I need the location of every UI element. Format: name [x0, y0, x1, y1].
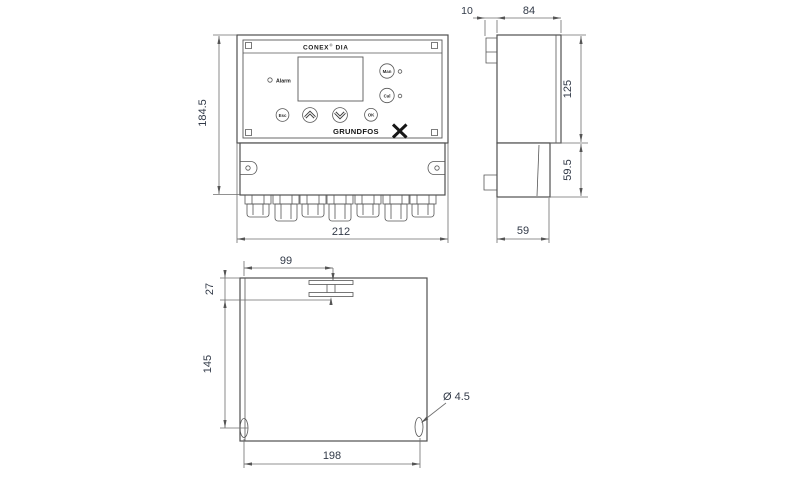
dim-depth-label: 84 — [523, 5, 535, 17]
dim-height-label: 184.5 — [197, 99, 209, 127]
dim-upper-height-label: 125 — [562, 80, 574, 98]
front-lower-housing — [240, 143, 445, 195]
side-top-mounting-tab — [486, 38, 497, 63]
cable-gland-caps — [247, 204, 434, 221]
side-terminal-box — [497, 143, 550, 197]
cal-button-label: Cal — [384, 93, 391, 98]
registered-mark: ® — [330, 43, 333, 48]
dim-slot-y-label: 27 — [204, 283, 216, 295]
ok-button-label: OK — [368, 113, 375, 118]
dim-plate-offset-label: 10 — [461, 5, 473, 17]
dim-holes-x-label: 198 — [323, 450, 341, 462]
side-view: 10 84 125 59.5 59 — [461, 5, 588, 243]
cable-gland-nuts — [245, 195, 436, 204]
side-bottom-mounting-tab — [484, 175, 497, 190]
dim-width-label: 212 — [332, 226, 350, 238]
hole-diameter-label: Ø 4.5 — [443, 391, 470, 403]
esc-button-label: Esc — [279, 113, 287, 118]
man-button-label: Man — [383, 69, 392, 74]
mounting-plate — [240, 278, 427, 441]
technical-drawing: CONEX ® DIA Alarm Man Cal Esc OK GRUNDFO… — [0, 0, 800, 492]
device-model: DIA — [336, 45, 349, 52]
alarm-label: Alarm — [276, 79, 291, 85]
side-upper-body — [497, 35, 561, 143]
grundfos-logo-text: GRUNDFOS — [333, 127, 379, 136]
dim-lower-height-label: 59.5 — [562, 159, 574, 180]
front-view: CONEX ® DIA Alarm Man Cal Esc OK GRUNDFO… — [197, 35, 448, 243]
back-view: 99 27 145 198 Ø 4.5 — [202, 255, 470, 468]
device-title: CONEX — [303, 45, 329, 52]
dimensional-drawing-canvas: CONEX ® DIA Alarm Man Cal Esc OK GRUNDFO… — [0, 0, 800, 492]
dim-holes-y-label: 145 — [202, 355, 214, 373]
dim-lower-depth-label: 59 — [517, 225, 529, 237]
dim-slot-x-label: 99 — [280, 255, 292, 267]
